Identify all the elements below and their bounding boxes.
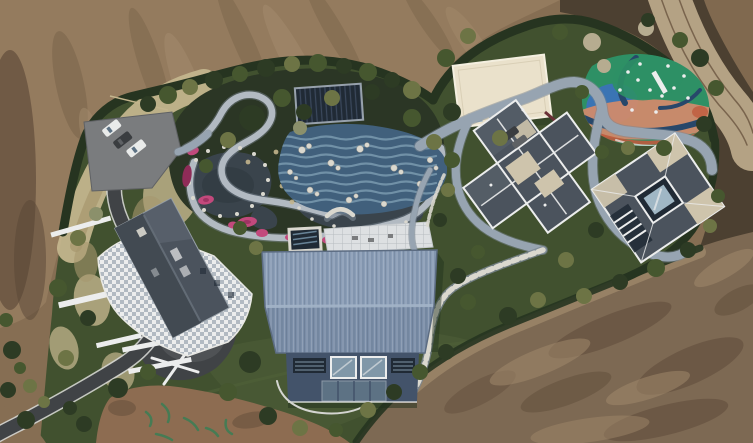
tree <box>412 364 428 380</box>
terrace-door <box>228 292 234 298</box>
tree <box>711 189 725 203</box>
tree <box>182 79 198 95</box>
tree <box>140 364 156 380</box>
tree <box>426 134 442 150</box>
dirt-streak <box>108 400 136 416</box>
tree <box>239 351 261 373</box>
rock <box>328 160 334 166</box>
tree <box>450 268 466 284</box>
rock <box>310 217 314 221</box>
play-equipment-dot <box>660 94 664 98</box>
rock <box>297 206 301 210</box>
tree <box>324 90 340 106</box>
barn-ground-shadow <box>288 403 417 408</box>
shrub <box>14 362 26 374</box>
deck-furniture <box>388 234 393 238</box>
rock <box>202 208 206 212</box>
bare-tree <box>583 33 601 51</box>
tree <box>443 103 461 121</box>
tree <box>364 84 380 100</box>
tree <box>588 222 604 238</box>
tree <box>433 213 447 227</box>
play-equipment-dot <box>630 108 634 112</box>
shrub <box>63 401 77 415</box>
rock <box>287 169 292 174</box>
tree <box>530 292 546 308</box>
tree <box>384 72 400 88</box>
tree <box>403 81 421 99</box>
tree <box>558 252 574 268</box>
rock <box>336 166 341 171</box>
deck-furniture <box>352 236 358 240</box>
shrub <box>0 382 16 398</box>
rock <box>263 163 267 167</box>
play-equipment-dot <box>686 96 690 100</box>
shrub <box>23 379 37 393</box>
tree <box>460 28 476 44</box>
deck-furniture <box>368 238 374 242</box>
play-equipment-dot <box>672 86 676 90</box>
rock <box>235 212 239 216</box>
tree <box>386 384 402 400</box>
rock <box>332 224 336 228</box>
tree <box>438 344 454 360</box>
tree <box>444 152 460 168</box>
tree <box>239 105 265 131</box>
rock <box>246 160 251 165</box>
tree <box>696 116 712 132</box>
tree <box>708 80 724 96</box>
barn-roof-corrugation <box>262 250 437 353</box>
flower-accent <box>203 198 209 202</box>
tree <box>219 383 237 401</box>
tree <box>58 350 74 366</box>
tree <box>576 288 592 304</box>
tree <box>80 310 96 326</box>
rock <box>381 201 387 207</box>
rock <box>194 158 198 162</box>
play-equipment-dot <box>666 64 670 68</box>
tree <box>460 294 476 310</box>
tree <box>595 145 609 159</box>
rock <box>274 150 279 155</box>
tree <box>199 159 213 173</box>
shrub <box>17 411 35 429</box>
play-equipment-dot <box>636 78 640 82</box>
rock <box>354 194 358 198</box>
barn-ridge <box>265 306 434 307</box>
tree <box>703 219 717 233</box>
bare-tree <box>597 59 611 73</box>
tree <box>336 58 352 74</box>
tree <box>672 32 688 48</box>
tree <box>612 274 628 290</box>
tree <box>233 221 247 235</box>
tree <box>89 207 103 221</box>
dirt-shadow-edge <box>14 200 46 320</box>
shrub <box>3 341 21 359</box>
tree <box>249 241 263 255</box>
play-equipment-dot <box>626 70 630 74</box>
tree <box>492 130 508 146</box>
tree <box>499 307 517 325</box>
rock <box>218 214 222 218</box>
tree <box>292 420 308 436</box>
tree <box>159 86 177 104</box>
play-equipment-dot <box>682 74 686 78</box>
tree <box>641 13 655 27</box>
tree <box>691 49 709 67</box>
rock <box>299 147 306 154</box>
terrace-door <box>214 280 220 286</box>
tree <box>552 24 568 40</box>
tree <box>108 378 128 398</box>
tree <box>360 402 376 418</box>
tree <box>309 54 327 72</box>
tree <box>329 423 343 437</box>
rock <box>365 143 370 148</box>
rock <box>434 166 438 170</box>
tree <box>205 71 223 89</box>
spa-pool <box>287 226 322 253</box>
play-equipment-dot <box>648 88 652 92</box>
rock <box>306 143 311 148</box>
rock <box>252 152 256 156</box>
rock <box>191 196 195 200</box>
tree <box>437 49 455 67</box>
tree <box>575 85 589 99</box>
tree <box>70 230 86 246</box>
rock <box>261 192 265 196</box>
tree <box>680 242 696 258</box>
rock <box>250 204 254 208</box>
tree <box>284 56 300 72</box>
tree <box>49 279 67 297</box>
tree <box>647 259 665 277</box>
tree <box>273 89 291 107</box>
rock <box>294 176 298 180</box>
tree <box>220 132 236 148</box>
rock <box>315 192 319 196</box>
rock <box>427 157 433 163</box>
play-equipment-dot <box>618 88 622 92</box>
tree <box>293 121 307 135</box>
rock <box>266 178 270 182</box>
rock <box>399 170 404 175</box>
tree <box>359 63 377 81</box>
tree <box>656 140 672 156</box>
terrace-door <box>200 268 206 274</box>
tree <box>232 66 248 82</box>
shrub <box>38 396 50 408</box>
rock <box>357 146 364 153</box>
shrub <box>76 416 92 432</box>
aerial-photo-canvas <box>0 0 753 443</box>
aerial-photo <box>0 0 753 443</box>
tree <box>621 141 635 155</box>
rock <box>391 165 397 171</box>
rock <box>307 187 313 193</box>
dry-grass-patch <box>74 242 98 282</box>
tree <box>140 96 156 112</box>
rock <box>206 149 210 153</box>
tree <box>471 245 485 259</box>
tree <box>441 183 455 197</box>
rock <box>346 197 352 203</box>
tree <box>296 104 312 120</box>
play-equipment-dot <box>638 62 642 66</box>
rock <box>290 200 295 205</box>
flower-bed <box>256 229 268 237</box>
tree <box>403 109 421 127</box>
rock <box>238 146 242 150</box>
play-equipment-dot <box>654 110 658 114</box>
tree <box>259 407 277 425</box>
barn-hall <box>262 250 444 413</box>
tree <box>257 59 275 77</box>
